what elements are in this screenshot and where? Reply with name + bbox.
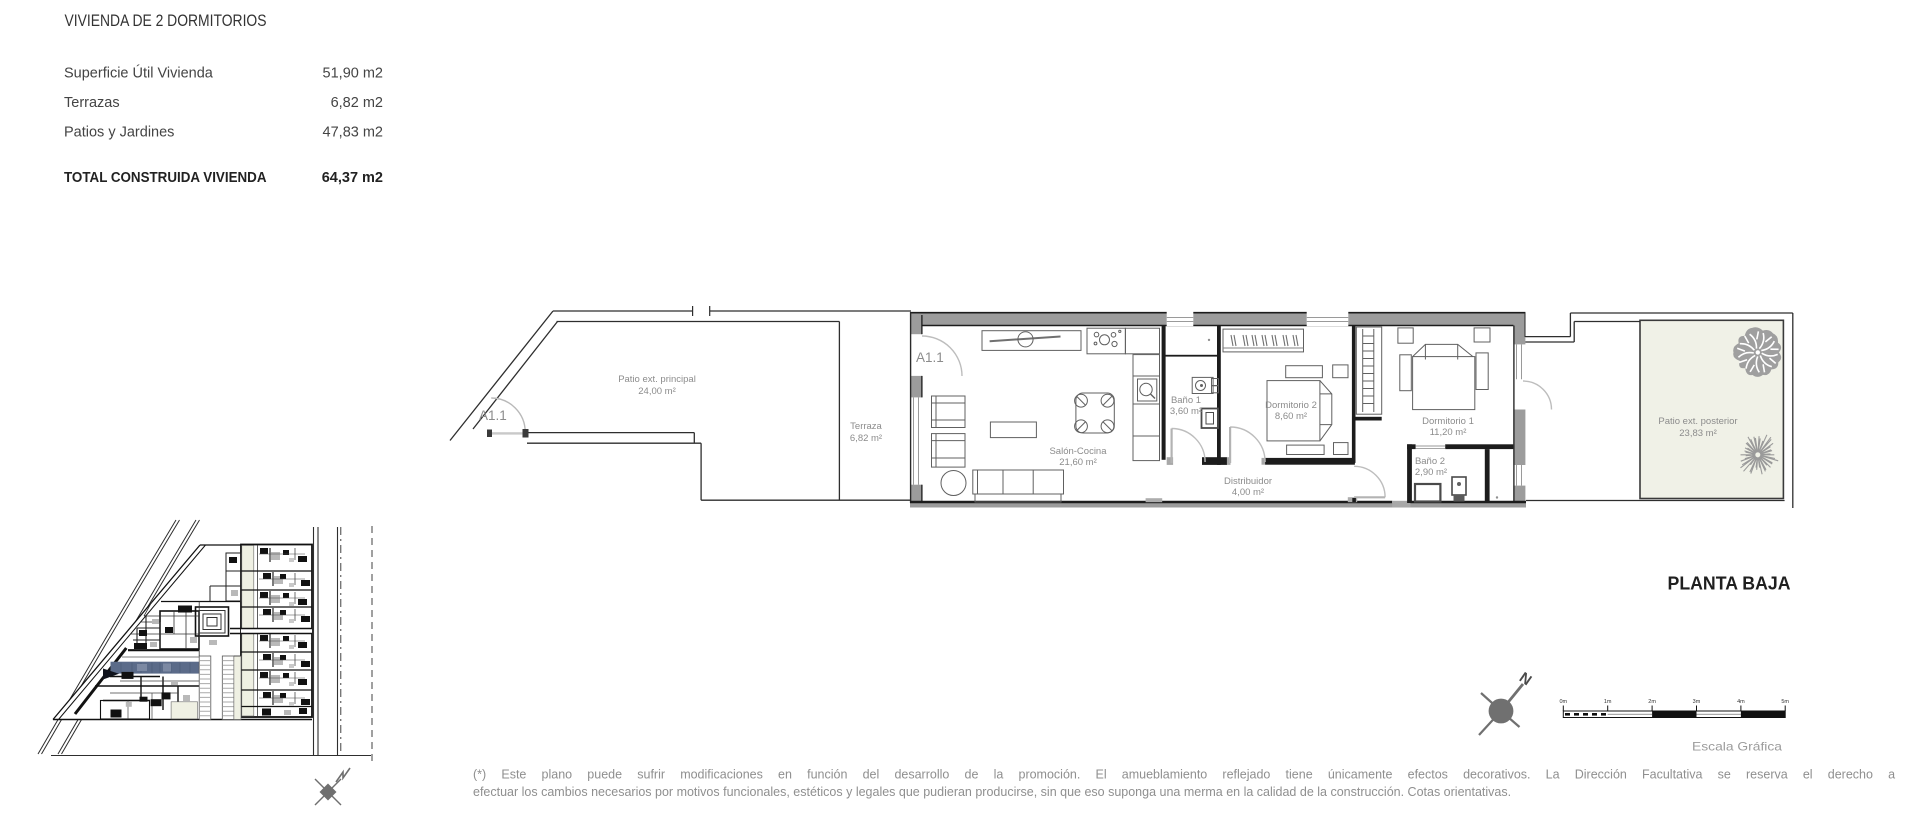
svg-text:4,00 m²: 4,00 m² <box>1232 487 1264 498</box>
svg-text:Patios y Jardines: Patios y Jardines <box>64 125 174 141</box>
svg-text:Dormitorio 2: Dormitorio 2 <box>1265 400 1317 411</box>
svg-text:2m: 2m <box>1648 699 1656 705</box>
svg-text:64,37 m2: 64,37 m2 <box>322 170 383 186</box>
svg-text:Terraza: Terraza <box>850 421 882 432</box>
svg-text:0m: 0m <box>1559 699 1567 705</box>
svg-text:5m: 5m <box>1781 699 1789 705</box>
svg-text:PLANTA BAJA: PLANTA BAJA <box>1668 574 1791 594</box>
svg-text:Patio ext. posterior: Patio ext. posterior <box>1658 416 1737 427</box>
svg-text:Patio ext. principal: Patio ext. principal <box>618 374 696 385</box>
svg-text:A1.1: A1.1 <box>479 408 507 423</box>
svg-text:efectuar los cambios necesario: efectuar los cambios necesarios por moti… <box>473 785 1511 799</box>
svg-text:VIVIENDA DE 2 DORMITORIOS: VIVIENDA DE 2 DORMITORIOS <box>65 11 267 30</box>
svg-text:Dormitorio 1: Dormitorio 1 <box>1422 416 1474 427</box>
svg-text:3m: 3m <box>1693 699 1701 705</box>
svg-text:24,00 m²: 24,00 m² <box>638 386 676 397</box>
svg-text:Superficie Útil Vivienda: Superficie Útil Vivienda <box>64 65 214 82</box>
svg-text:Baño 2: Baño 2 <box>1415 456 1445 467</box>
svg-text:23,83 m²: 23,83 m² <box>1679 428 1717 439</box>
svg-text:6,82 m²: 6,82 m² <box>850 433 882 444</box>
svg-text:Terrazas: Terrazas <box>64 95 120 111</box>
svg-text:1m: 1m <box>1604 699 1612 705</box>
svg-text:Escala Gráfica: Escala Gráfica <box>1692 740 1782 754</box>
svg-text:51,90 m2: 51,90 m2 <box>323 66 383 82</box>
svg-text:21,60 m²: 21,60 m² <box>1059 457 1097 468</box>
svg-text:(*) Este plano puede sufrir mo: (*) Este plano puede sufrir modificacion… <box>473 768 1895 782</box>
svg-text:47,83 m2: 47,83 m2 <box>323 125 383 141</box>
svg-text:N: N <box>1516 669 1535 689</box>
svg-text:2,90 m²: 2,90 m² <box>1415 467 1447 478</box>
svg-text:11,20 m²: 11,20 m² <box>1430 427 1467 438</box>
svg-text:Baño 1: Baño 1 <box>1171 395 1201 406</box>
svg-text:3,60 m²: 3,60 m² <box>1170 406 1202 417</box>
svg-text:Salón-Cocina: Salón-Cocina <box>1049 446 1107 457</box>
svg-text:8,60 m²: 8,60 m² <box>1275 411 1307 422</box>
svg-text:Distribuidor: Distribuidor <box>1224 476 1272 487</box>
svg-text:A1.1: A1.1 <box>916 350 944 365</box>
svg-text:TOTAL CONSTRUIDA VIVIENDA: TOTAL CONSTRUIDA VIVIENDA <box>64 170 267 186</box>
svg-text:6,82 m2: 6,82 m2 <box>331 95 383 111</box>
svg-text:4m: 4m <box>1737 699 1745 705</box>
